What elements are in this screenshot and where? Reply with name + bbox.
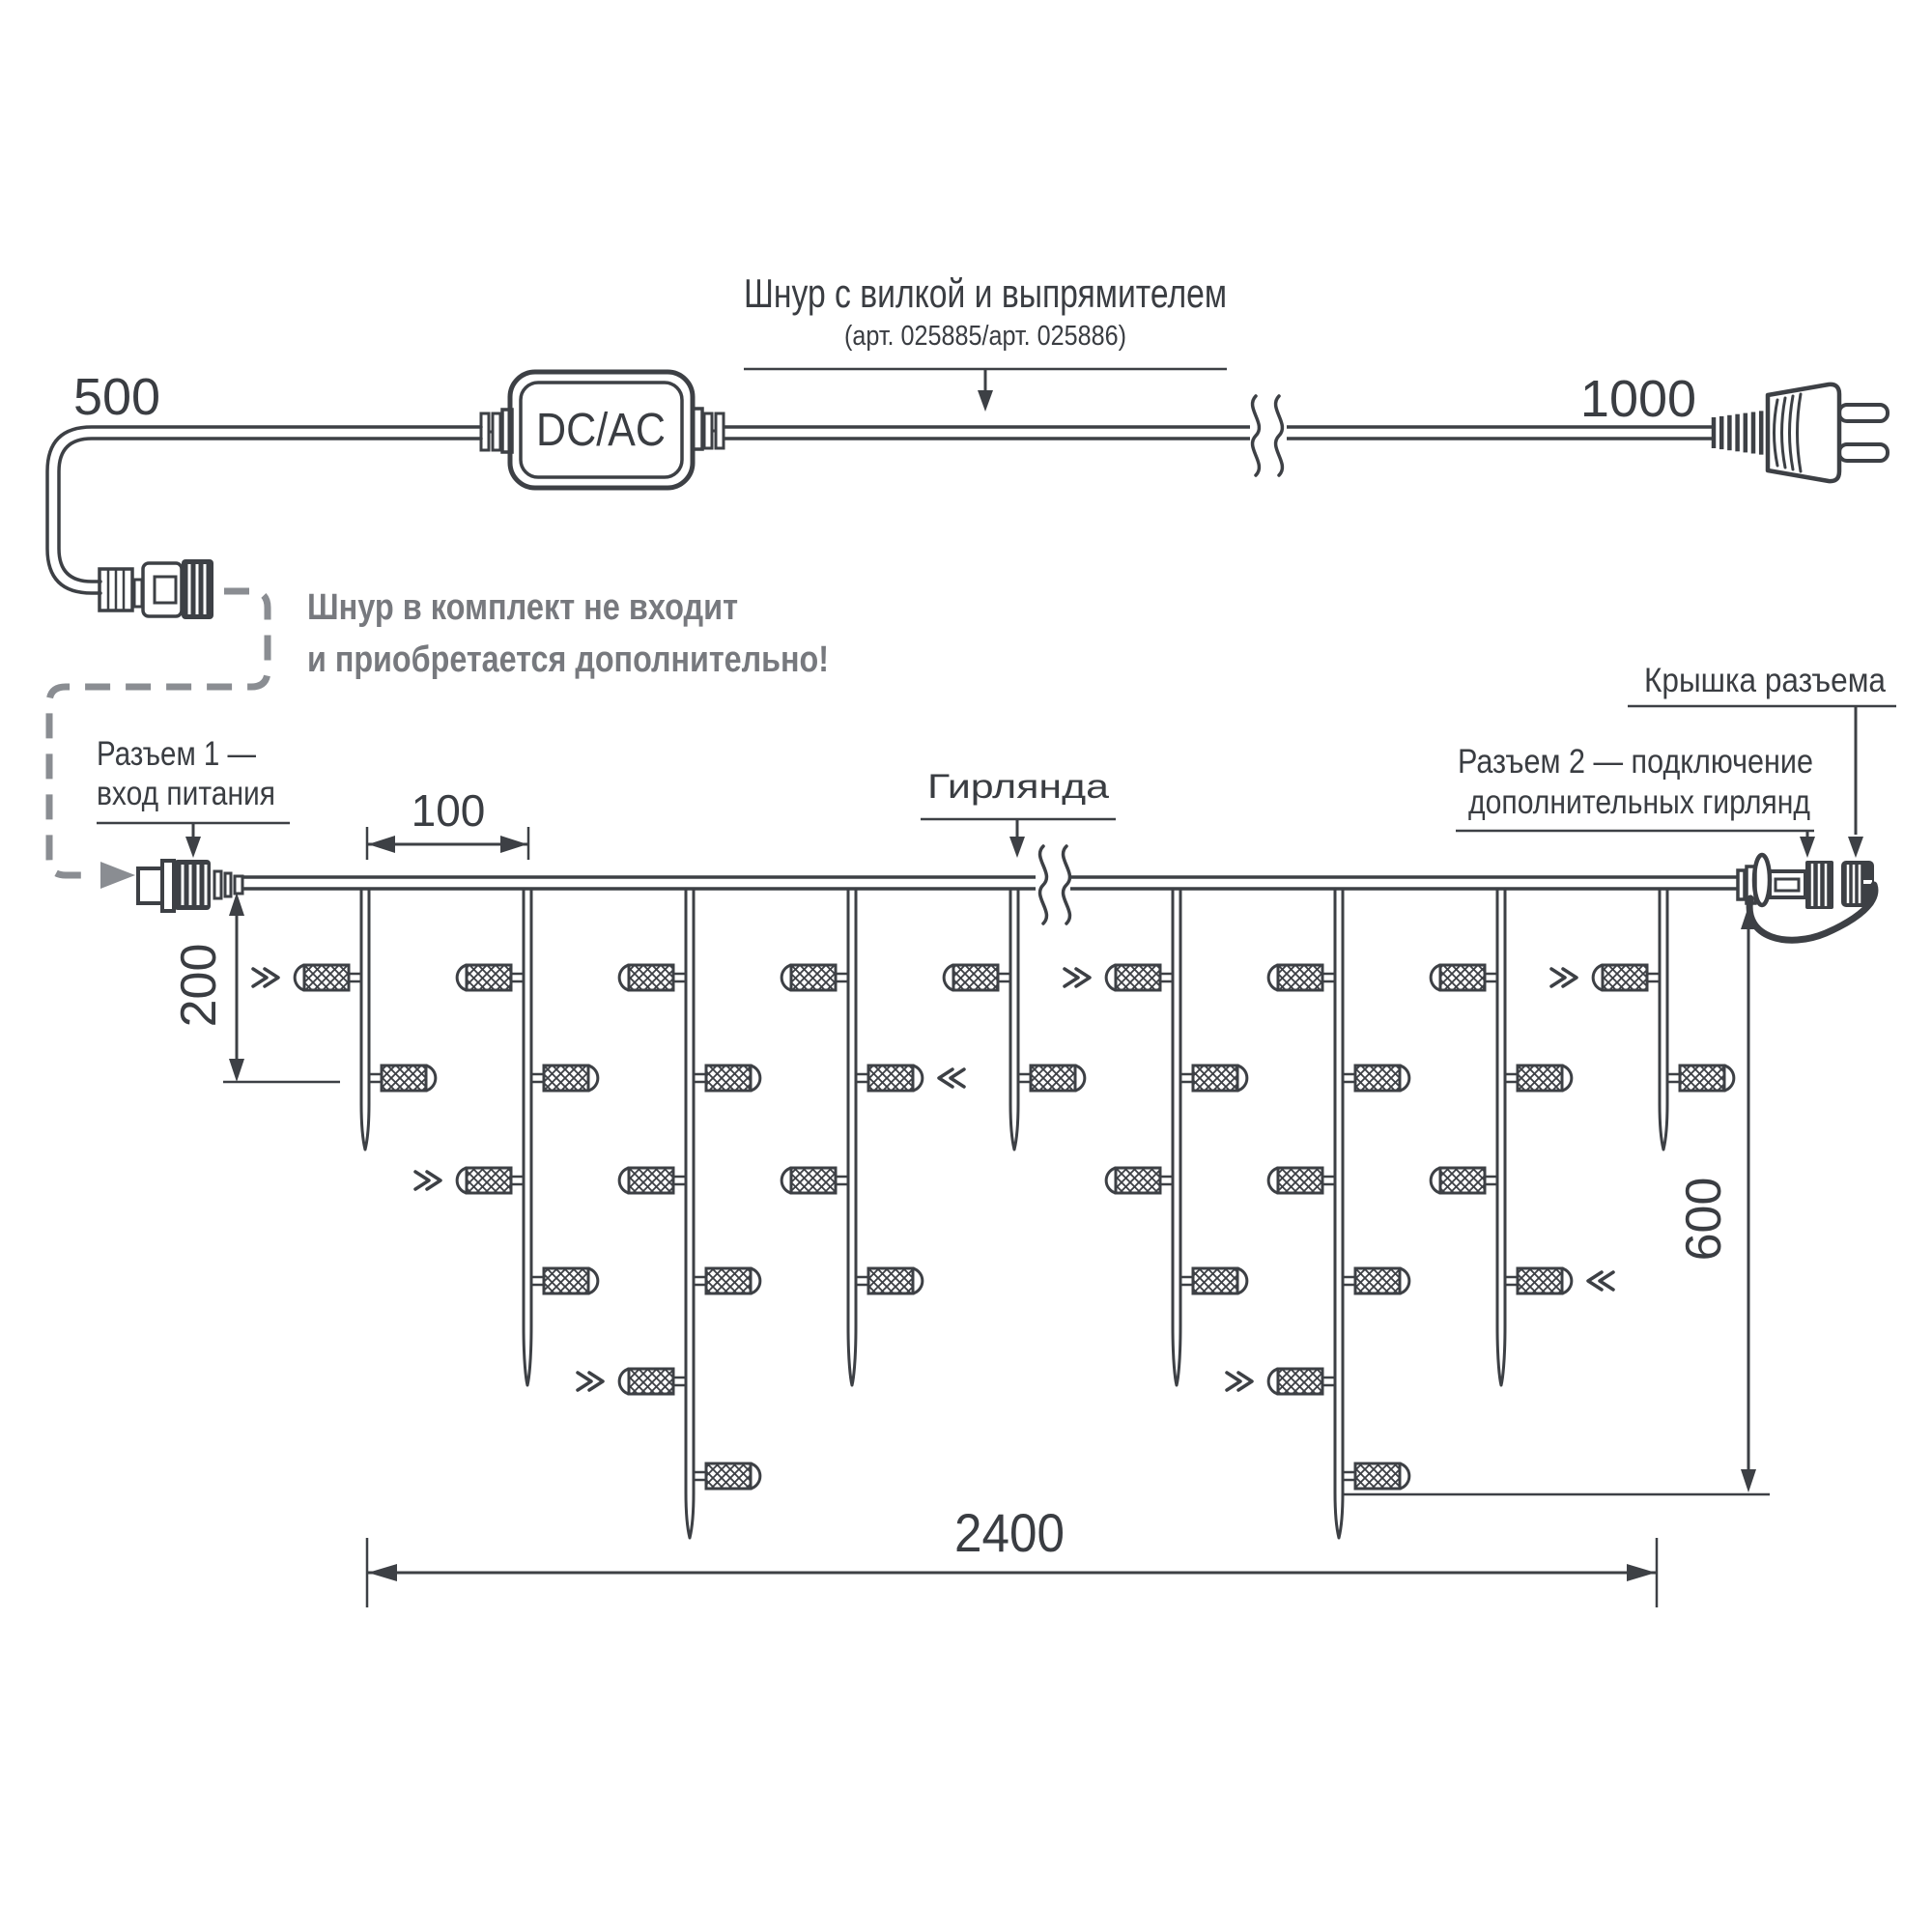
led-bulb bbox=[706, 1065, 751, 1091]
down-arrow-icon bbox=[1800, 837, 1815, 858]
led-bulb bbox=[706, 1268, 751, 1293]
led-bulb bbox=[868, 1065, 913, 1091]
connector1-label-line1: Разъем 1 — bbox=[97, 735, 256, 773]
flash-chevron-icon bbox=[1227, 1373, 1252, 1390]
garland-drop bbox=[848, 889, 856, 1385]
garland-drop bbox=[1173, 889, 1180, 1385]
dcac-left-bushing bbox=[502, 410, 512, 452]
down-arrow-icon bbox=[978, 390, 993, 412]
down-arrow-icon bbox=[229, 1059, 244, 1082]
led-bulb bbox=[868, 1268, 913, 1293]
right-arrow-icon bbox=[500, 836, 527, 853]
plug-body-detail bbox=[1775, 400, 1778, 466]
garland-drop bbox=[1497, 889, 1505, 1385]
garland-technical-diagram: Шнур с вилкой и выпрямителем (арт. 02588… bbox=[0, 0, 1932, 1932]
led-bulb bbox=[1518, 1268, 1562, 1293]
dim-2400: 2400 bbox=[954, 1502, 1065, 1563]
led-bulb bbox=[629, 1369, 673, 1394]
cap-label: Крышка разъема bbox=[1644, 662, 1886, 699]
led-bulb bbox=[1355, 1463, 1400, 1489]
flash-chevron-icon bbox=[1551, 969, 1577, 986]
dcac-right-clamp bbox=[716, 413, 724, 448]
dcac-label: DC/AC bbox=[536, 405, 666, 456]
led-bulb bbox=[1603, 965, 1647, 990]
garland-drop bbox=[1010, 889, 1018, 1150]
led-bulb bbox=[1116, 965, 1160, 990]
connector2-band bbox=[1738, 870, 1745, 899]
led-bulb bbox=[706, 1463, 751, 1489]
down-arrow-icon bbox=[1848, 837, 1863, 858]
garland-drop bbox=[686, 889, 694, 1538]
led-bulb bbox=[629, 965, 673, 990]
flash-chevron-icon bbox=[1588, 1272, 1613, 1290]
led-bulb bbox=[1278, 965, 1322, 990]
led-bulb bbox=[1680, 1065, 1724, 1091]
down-arrow-icon bbox=[1741, 1469, 1756, 1492]
led-bulb bbox=[467, 965, 511, 990]
gray-right-arrow-icon bbox=[100, 862, 135, 889]
cable-break-icon bbox=[1253, 396, 1260, 475]
left-arrow-icon bbox=[368, 836, 395, 853]
plug-body-detail bbox=[1790, 396, 1794, 469]
led-bulb bbox=[1278, 1369, 1322, 1394]
connector2-label-line1: Разъем 2 — подключение bbox=[1458, 743, 1813, 781]
flash-chevron-icon bbox=[253, 969, 278, 986]
led-bulb bbox=[1518, 1065, 1562, 1091]
dashed-connection-route bbox=[49, 591, 268, 875]
dim-200: 200 bbox=[171, 944, 227, 1028]
led-bulb bbox=[1355, 1268, 1400, 1293]
led-bulb bbox=[1116, 1168, 1160, 1193]
led-bulb bbox=[791, 965, 836, 990]
plug-prong bbox=[1839, 405, 1888, 421]
dcac-left-clamp bbox=[481, 413, 489, 450]
dim-1000: 1000 bbox=[1580, 370, 1696, 428]
flash-chevron-icon bbox=[578, 1373, 603, 1390]
dcac-right-clamp bbox=[704, 413, 712, 448]
cable-connector-slot bbox=[155, 577, 176, 603]
garland-drop bbox=[524, 889, 531, 1385]
led-bulb bbox=[467, 1168, 511, 1193]
led-bulb bbox=[1355, 1065, 1400, 1091]
right-arrow-icon bbox=[1627, 1564, 1656, 1581]
led-bulb bbox=[304, 965, 349, 990]
plug-body-detail bbox=[1798, 394, 1802, 471]
note-line1: Шнур в комплект не входит bbox=[307, 587, 738, 628]
led-bulb bbox=[544, 1268, 588, 1293]
plug-body bbox=[1768, 384, 1839, 481]
connector1-flange bbox=[162, 861, 174, 911]
led-bulb bbox=[1031, 1065, 1075, 1091]
left-arrow-icon bbox=[368, 1564, 397, 1581]
led-bulb bbox=[1193, 1065, 1237, 1091]
cable-break-icon bbox=[1040, 846, 1047, 923]
garland-label: Гирлянда bbox=[927, 768, 1110, 806]
dim-500: 500 bbox=[73, 368, 160, 426]
led-bulb bbox=[382, 1065, 426, 1091]
cable-500 bbox=[59, 439, 481, 582]
connector2-label-line2: дополнительных гирлянд bbox=[1468, 783, 1810, 821]
flash-chevron-icon bbox=[415, 1172, 440, 1189]
connector1-label-line2: вход питания bbox=[97, 775, 275, 812]
cable-connector-clamp bbox=[134, 580, 142, 607]
down-arrow-icon bbox=[1009, 837, 1025, 858]
diagram-linework bbox=[47, 369, 1896, 1607]
plug-prong bbox=[1839, 444, 1888, 461]
dcac-right-bushing bbox=[693, 409, 702, 449]
connector1-clamp bbox=[235, 876, 242, 894]
connector1-clamp bbox=[214, 871, 221, 898]
led-bulb bbox=[791, 1168, 836, 1193]
garland-drop bbox=[361, 889, 369, 1150]
down-arrow-icon bbox=[185, 837, 201, 858]
plug-body-detail bbox=[1782, 398, 1786, 468]
cord-article: (арт. 025885/арт. 025886) bbox=[844, 321, 1126, 352]
led-bulb bbox=[544, 1065, 588, 1091]
garland-drop bbox=[1660, 889, 1667, 1150]
diagram-labels: Шнур с вилкой и выпрямителем (арт. 02588… bbox=[73, 270, 1887, 1563]
dcac-left-clamp bbox=[493, 413, 500, 450]
note-line2: и приобретается дополнительно! bbox=[307, 639, 829, 680]
flash-chevron-icon bbox=[1065, 969, 1090, 986]
led-bulb bbox=[953, 965, 998, 990]
led-bulb bbox=[1193, 1268, 1237, 1293]
dim-100: 100 bbox=[412, 785, 486, 836]
led-bulb bbox=[1440, 965, 1485, 990]
led-bulb bbox=[1440, 1168, 1485, 1193]
dim-600: 600 bbox=[1676, 1178, 1732, 1262]
flash-chevron-icon bbox=[939, 1069, 964, 1087]
led-bulb bbox=[629, 1168, 673, 1193]
connector2-slot bbox=[1776, 879, 1799, 891]
garland-drop bbox=[1335, 889, 1343, 1538]
cable-break-icon bbox=[1276, 396, 1283, 475]
led-bulb bbox=[1278, 1168, 1322, 1193]
connector1-body bbox=[138, 868, 162, 903]
cord-title: Шнур с вилкой и выпрямителем bbox=[744, 270, 1227, 316]
connector1-clamp bbox=[225, 873, 231, 896]
cable-break-icon bbox=[1064, 846, 1070, 923]
